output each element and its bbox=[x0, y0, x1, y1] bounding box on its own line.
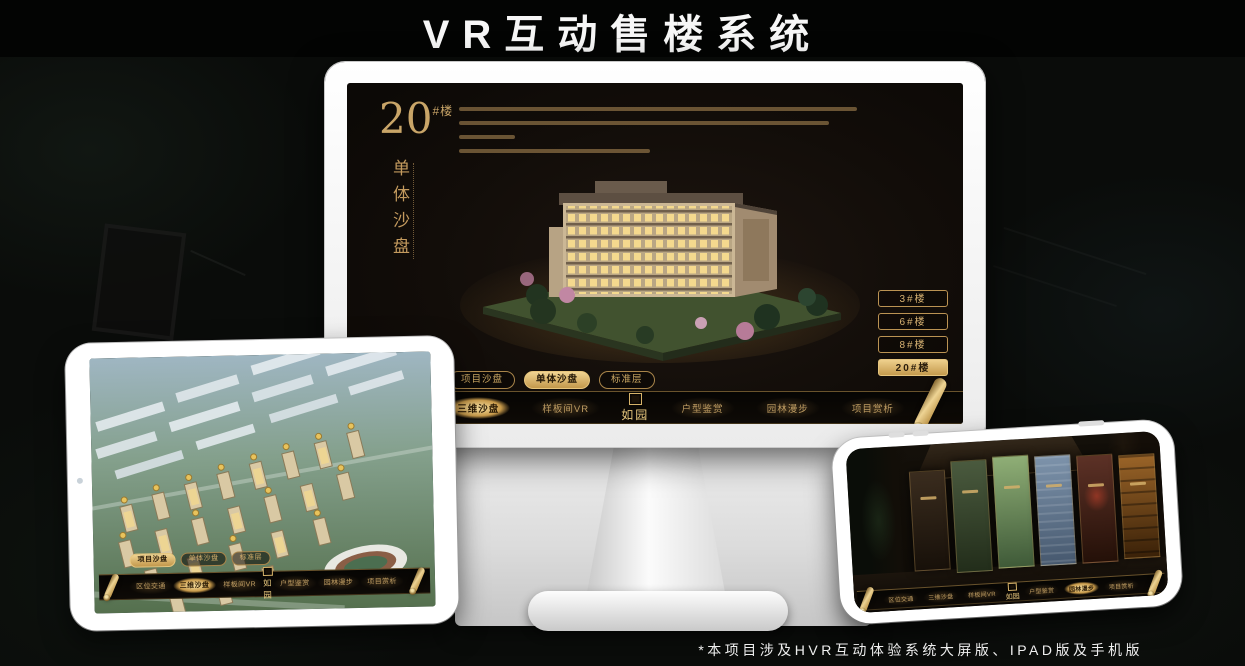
background-plaque bbox=[92, 223, 187, 340]
floor-button-group: 3#楼 6#楼 8#楼 20#楼 bbox=[878, 290, 950, 382]
tab-standard-floor[interactable]: 标准层 bbox=[599, 371, 655, 389]
building-number: 20 bbox=[379, 94, 432, 143]
footnote-text: *本项目涉及HVR互动体验系统大屏版、IPAD版及手机版 bbox=[698, 640, 1143, 660]
tablet-device: 项目沙盘 单体沙盘 标准层 区位交通 三维沙盘 样板间VR 如园 户型鉴赏 园林… bbox=[65, 336, 459, 631]
tab-standard-floor[interactable]: 标准层 bbox=[231, 551, 270, 566]
nav-item-3d-sandbox[interactable]: 三维沙盘 bbox=[923, 589, 959, 604]
nav-item-project-review[interactable]: 项目赏析 bbox=[841, 397, 905, 419]
sandbox-sub-tabs: 项目沙盘 单体沙盘 标准层 bbox=[449, 371, 655, 389]
background-road-line bbox=[190, 250, 246, 276]
tab-single-sandbox[interactable]: 单体沙盘 bbox=[180, 552, 226, 567]
building-3d-render[interactable] bbox=[445, 145, 875, 367]
brand-logo: 如园 bbox=[263, 567, 274, 601]
nav-item-unit-plans[interactable]: 户型鉴赏 bbox=[671, 397, 735, 419]
nav-item-location[interactable]: 区位交通 bbox=[883, 591, 919, 606]
nav-item-showroom-vr[interactable]: 样板间VR bbox=[216, 576, 263, 593]
nav-item-location[interactable]: 区位交通 bbox=[129, 578, 173, 595]
seal-icon bbox=[629, 393, 642, 405]
scroll-icon[interactable] bbox=[409, 566, 426, 593]
volume-button bbox=[889, 432, 905, 438]
nav-item-unit-plans[interactable]: 户型鉴赏 bbox=[1024, 583, 1060, 598]
gallery-panel[interactable] bbox=[909, 470, 951, 572]
tab-project-sandbox[interactable]: 项目沙盘 bbox=[129, 553, 175, 568]
background-road-line bbox=[1003, 227, 1146, 275]
power-button bbox=[1078, 420, 1104, 427]
floor-button-active[interactable]: 20#楼 bbox=[878, 359, 948, 376]
nav-item-garden-walk[interactable]: 园林漫步 bbox=[756, 397, 820, 419]
text-line bbox=[459, 107, 857, 111]
text-line bbox=[459, 135, 515, 139]
building-number-suffix: #楼 bbox=[432, 104, 453, 118]
camera-dot-icon bbox=[77, 478, 83, 484]
text-line bbox=[459, 121, 829, 125]
tablet-screen: 项目沙盘 单体沙盘 标准层 区位交通 三维沙盘 样板间VR 如园 户型鉴赏 园林… bbox=[89, 351, 435, 613]
gallery-panel[interactable] bbox=[1076, 454, 1118, 564]
brand-logo: 如园 bbox=[621, 393, 649, 423]
phone-device: 区位交通 三维沙盘 样板间VR 如园 户型鉴赏 园林漫步 项目赏析 bbox=[831, 419, 1183, 625]
gallery-panel[interactable] bbox=[1118, 453, 1160, 559]
floor-button[interactable]: 6#楼 bbox=[878, 313, 948, 330]
gallery-panel[interactable] bbox=[1034, 454, 1076, 566]
nav-item-3d-sandbox[interactable]: 三维沙盘 bbox=[446, 397, 510, 419]
floor-button[interactable]: 8#楼 bbox=[878, 336, 948, 353]
scroll-icon[interactable] bbox=[912, 376, 948, 424]
nav-item-showroom-vr[interactable]: 样板间VR bbox=[963, 586, 1002, 601]
scroll-icon[interactable] bbox=[859, 586, 875, 613]
floor-button[interactable]: 3#楼 bbox=[878, 290, 948, 307]
scroll-icon[interactable] bbox=[1147, 569, 1163, 596]
building-subtitle: 单体沙盘 bbox=[387, 159, 412, 263]
phone-screen: 区位交通 三维沙盘 样板间VR 如园 户型鉴赏 园林漫步 项目赏析 bbox=[845, 431, 1168, 613]
monitor-stand-base bbox=[528, 591, 788, 631]
gallery-panel[interactable] bbox=[950, 459, 993, 573]
nav-item-garden-walk[interactable]: 园林漫步 bbox=[1064, 580, 1100, 595]
nav-item-3d-sandbox[interactable]: 三维沙盘 bbox=[173, 577, 217, 594]
nav-item-project-review[interactable]: 项目赏析 bbox=[1103, 578, 1139, 593]
brand-logo-text: 如园 bbox=[621, 406, 649, 423]
tab-single-sandbox[interactable]: 单体沙盘 bbox=[524, 371, 590, 389]
nav-item-showroom-vr[interactable]: 样板间VR bbox=[531, 397, 600, 419]
scroll-icon[interactable] bbox=[103, 573, 120, 600]
nav-item-project-review[interactable]: 项目赏析 bbox=[360, 573, 404, 590]
subtitle-rule bbox=[413, 163, 414, 259]
tab-project-sandbox[interactable]: 项目沙盘 bbox=[449, 371, 515, 389]
brand-logo: 如园 bbox=[1005, 582, 1020, 602]
seal-icon bbox=[263, 567, 273, 576]
page-title: VR互动售楼系统 bbox=[0, 2, 1245, 60]
nav-item-garden-walk[interactable]: 园林漫步 bbox=[316, 574, 360, 591]
seal-icon bbox=[1007, 582, 1016, 591]
tablet-sub-tabs: 项目沙盘 单体沙盘 标准层 bbox=[129, 551, 270, 568]
building-header: 20#楼 bbox=[379, 97, 453, 141]
gallery-panel[interactable] bbox=[992, 455, 1035, 569]
volume-button bbox=[912, 430, 928, 436]
background-road-line bbox=[993, 265, 1117, 307]
nav-item-unit-plans[interactable]: 户型鉴赏 bbox=[273, 575, 317, 592]
brand-logo-text: 如园 bbox=[263, 577, 274, 601]
page: VR互动售楼系统 20#楼 单体沙盘 bbox=[0, 0, 1245, 666]
brand-logo-text: 如园 bbox=[1005, 591, 1020, 602]
